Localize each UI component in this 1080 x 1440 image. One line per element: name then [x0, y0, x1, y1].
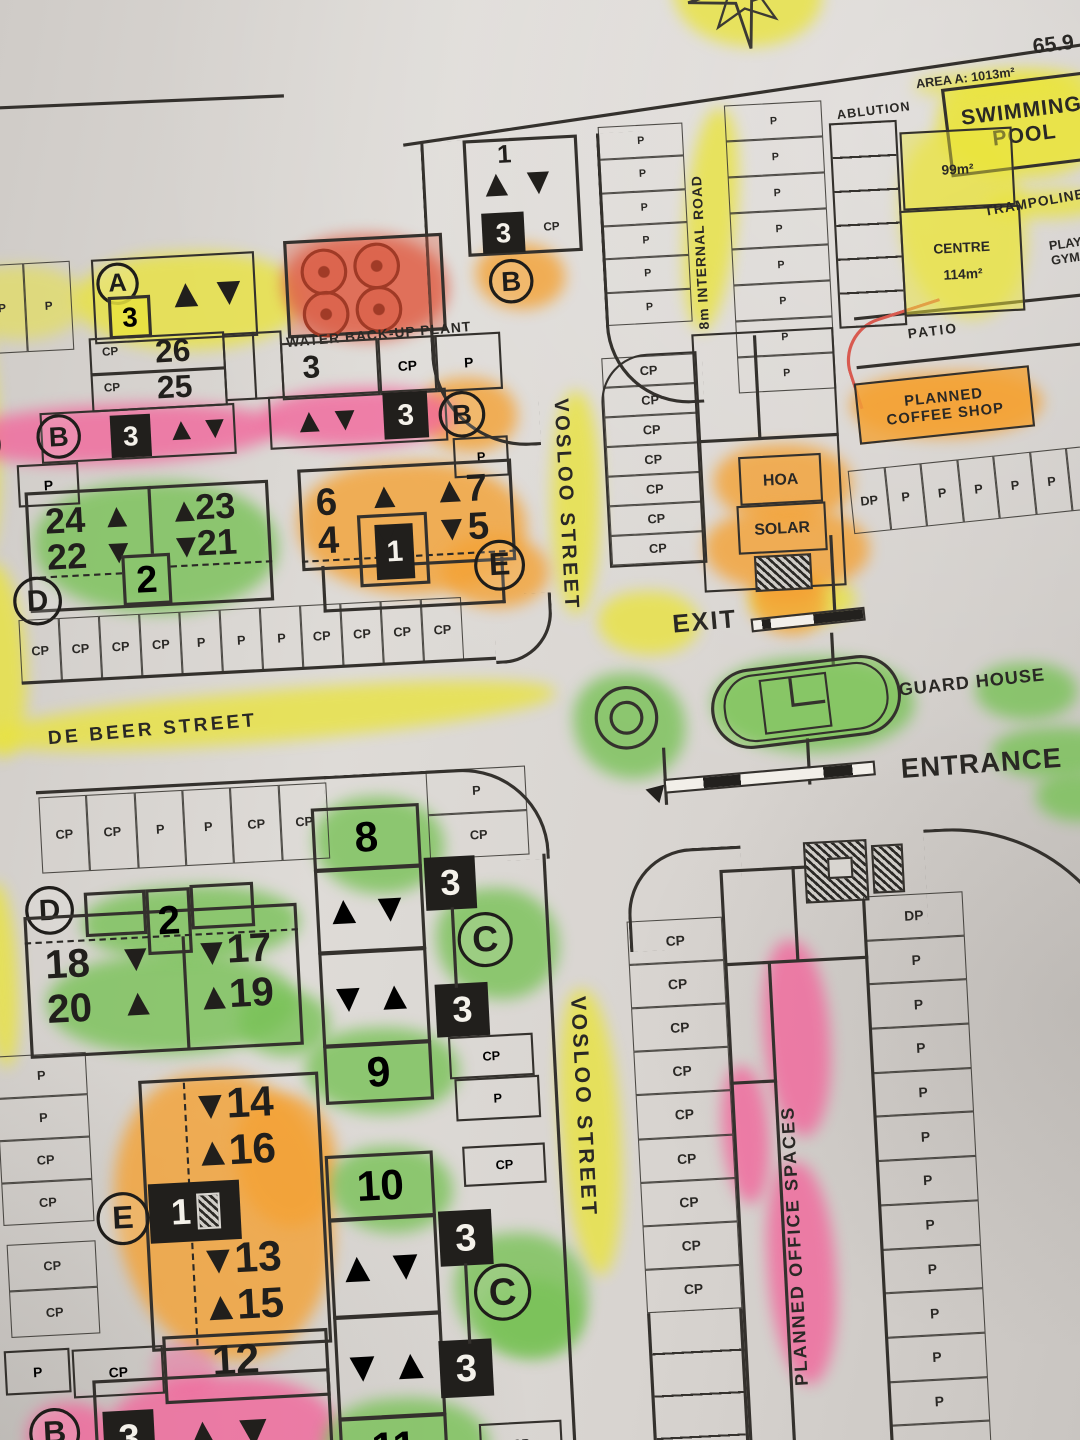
carport-stall: CP — [627, 917, 725, 966]
carport-stall: CP — [629, 960, 727, 1009]
direction-arrows: ▲▼ — [165, 270, 253, 315]
building-top-room — [189, 882, 255, 930]
unit-number-16: 16 — [228, 1127, 277, 1172]
unit-number-15: 15 — [236, 1281, 285, 1326]
parking-stall: P — [0, 1052, 88, 1099]
parking-stall: CP — [99, 614, 143, 680]
guard-house-building — [759, 672, 833, 735]
carport-label: CP — [102, 345, 119, 359]
arrow-down: ▼ — [433, 510, 471, 548]
unit-type-box: 3 — [108, 295, 153, 340]
parking-stall: CP — [428, 810, 530, 860]
building-unit-10: 10 — [325, 1150, 436, 1221]
highlight — [1035, 770, 1080, 823]
building-arrows: ▼▲ — [318, 947, 431, 1048]
parking-stall: P — [220, 607, 264, 673]
parking-stall: CP — [1, 1179, 94, 1226]
unit-number-19: 19 — [228, 972, 275, 1015]
carport-label: CP — [543, 220, 560, 234]
parking-stall: P — [425, 766, 527, 816]
parking-row: DPPPPPPP — [848, 444, 1080, 534]
building-arrows: ▼▲ — [333, 1311, 446, 1420]
carport-stall: CP — [633, 1047, 731, 1096]
ablution-building: 99m² — [899, 127, 1015, 211]
parking-column: PPCPCP — [0, 1052, 95, 1226]
building-arrows: ▲▼ — [314, 864, 426, 954]
carport-stall: CP — [609, 502, 704, 537]
building-unit-8: 8 — [311, 803, 422, 872]
parking-stall: CP — [38, 795, 90, 874]
unit-number-5: 5 — [467, 506, 490, 545]
direction-arrows: ▲▼ — [476, 161, 562, 204]
parking-stall: P — [870, 1024, 972, 1073]
parking-stall: P — [875, 1112, 977, 1161]
unit-type-box: 3 — [481, 212, 525, 254]
carport-stall: CP — [377, 335, 437, 395]
building-unit-9: 9 — [323, 1040, 434, 1105]
stair-hatch-icon — [199, 1195, 220, 1228]
carport-stall: CP — [642, 1221, 740, 1270]
parking-stall: P — [886, 1333, 988, 1382]
entrance-boom-gate — [663, 761, 875, 794]
parking-stall: CP — [139, 612, 183, 678]
parking-stall: P — [260, 605, 304, 671]
entrance-label: ENTRANCE — [900, 742, 1063, 785]
site-plan: PP A A 3 ▲▼ CP CP 26 25 B B 3 ▲▼ P WATER… — [0, 0, 1080, 1440]
arrow-down: ▼ — [116, 938, 156, 978]
parking-stall: CP — [86, 792, 138, 871]
parking-stall: P — [599, 156, 685, 194]
parking-stall: P — [881, 1244, 983, 1293]
arrow-up: ▲ — [118, 982, 158, 1022]
parking-stall: DP — [863, 891, 965, 940]
parking-stall: CP — [9, 1287, 100, 1338]
parking-stall: CP — [380, 599, 424, 665]
carport-stall: CP — [72, 1345, 166, 1398]
existing-structure-notch — [827, 857, 854, 880]
unit-type-box: 3 — [110, 414, 152, 458]
parking-stall: P — [884, 1288, 986, 1337]
unit-number-23: 23 — [194, 488, 236, 526]
solar-equipment — [754, 553, 813, 592]
parking-stall: P — [179, 610, 223, 676]
carport-stall: CP — [448, 1033, 535, 1080]
parking-stall: CP — [421, 597, 465, 663]
entrance-arrow — [643, 780, 664, 803]
carport-stall: CP — [636, 1091, 734, 1140]
parking-stall: P — [733, 280, 832, 321]
unit-number-21: 21 — [196, 524, 238, 562]
boundary-line — [0, 94, 284, 111]
unit-1-box: 1 — [148, 1180, 242, 1244]
parking-row: CPCPPPCPCP — [38, 782, 330, 873]
existing-structure — [871, 843, 905, 893]
arrow-up: ▲ — [366, 477, 404, 515]
parking-column-lines — [647, 1308, 751, 1440]
arrow-up: ▲ — [99, 497, 134, 533]
parking-stall: P — [872, 1068, 974, 1117]
unit-number-24: 24 — [44, 502, 86, 540]
parking-row: PP — [0, 261, 74, 355]
parking-stall: P — [23, 261, 74, 352]
parking-stall: P — [726, 136, 825, 177]
carport-stall: CP — [645, 1265, 743, 1314]
unit-number-25: 25 — [156, 371, 193, 405]
unit-number-20: 20 — [46, 988, 93, 1031]
unit-type-box: 3 — [382, 391, 429, 440]
building-top-room — [84, 889, 148, 937]
exit-label: EXIT — [671, 605, 738, 640]
carport-stall: CP — [607, 472, 702, 507]
unit-number-17: 17 — [226, 927, 273, 970]
parking-stall: P — [598, 123, 684, 161]
parking-stall: P — [877, 1156, 979, 1205]
play-gym-label: PLAY GYM — [1048, 234, 1080, 268]
parking-stall: P — [454, 1075, 541, 1122]
parking-stall: P — [4, 1348, 72, 1396]
parking-column-lines — [829, 120, 908, 329]
parking-stall: CP — [18, 618, 62, 684]
carport-stall: CP — [462, 1142, 547, 1187]
ablution-label: ABLUTION — [836, 100, 911, 124]
arrow-down: ▼ — [368, 515, 406, 553]
direction-arrows: ▲▼ — [165, 412, 234, 447]
parking-stall: CP — [300, 603, 344, 669]
parking-stall: P — [0, 1094, 90, 1141]
parking-stall: CP — [7, 1240, 98, 1291]
unit-2-box: 2 — [121, 553, 172, 606]
unit-number-3: 3 — [302, 352, 321, 385]
parking-stall: P — [731, 244, 830, 285]
guard-house-wall — [788, 678, 795, 706]
parking-stall: P — [606, 288, 692, 326]
unit-number-26: 26 — [154, 335, 191, 369]
carport-stall: CP — [640, 1178, 738, 1227]
highlight — [0, 882, 23, 1069]
parking-stall: P — [865, 935, 967, 984]
unit-number-18: 18 — [44, 943, 91, 986]
parking-column: PPPPPP — [598, 123, 693, 326]
direction-arrows: ▲▼ — [179, 1407, 282, 1440]
play-gym-line: GYM — [1050, 249, 1080, 268]
parking-stall: P — [724, 100, 823, 141]
unit-number-1: 1 — [170, 1191, 192, 1233]
parking-stall: CP — [0, 1136, 92, 1183]
hoa-room: HOA — [738, 453, 823, 506]
compass-rose-icon — [655, 0, 830, 63]
parking-stall: P — [603, 222, 689, 260]
unit-number-6: 6 — [315, 482, 338, 521]
parking-column: CPCP — [7, 1240, 101, 1338]
parking-stall: P — [134, 790, 186, 869]
unit-type-box: 3 — [102, 1409, 156, 1440]
unit-number-13: 13 — [233, 1235, 282, 1280]
unit-type-box: 3 — [438, 1338, 494, 1398]
carport-stall: CP — [606, 442, 701, 477]
unit-type-box: 3 — [435, 982, 491, 1038]
unit-type-box: 3 — [438, 1209, 494, 1267]
carport-column: CPCPCPCPCPCPCP — [599, 351, 707, 568]
parking-stall: P — [605, 255, 691, 293]
parking-stall: P — [879, 1200, 981, 1249]
carport-stall: CP — [479, 1420, 564, 1440]
water-tank-icon — [299, 247, 348, 296]
unit-number-7: 7 — [465, 468, 488, 507]
parking-stall: P — [728, 172, 827, 213]
centre-building: CENTRE 114m² — [899, 205, 1025, 317]
site-plan-photo: PP A A 3 ▲▼ CP CP 26 25 B B 3 ▲▼ P WATER… — [0, 0, 1080, 1440]
parking-pair: PCP — [425, 766, 529, 860]
centre-area-label: 114m² — [943, 265, 983, 283]
carport-stall: CP — [611, 531, 706, 566]
solar-room: SOLAR — [736, 501, 827, 554]
parking-stall: P — [868, 979, 970, 1028]
corner-number: 65.9 — [1031, 31, 1075, 60]
carport-label: CP — [104, 381, 121, 395]
unit-number-22: 22 — [46, 538, 88, 576]
unit-number-14: 14 — [225, 1080, 274, 1125]
parking-stall: P — [434, 332, 503, 393]
direction-arrows: ▲▼ — [292, 400, 365, 438]
unit-type-box: 3 — [424, 855, 478, 911]
parking-stall: P — [182, 787, 234, 866]
building-unit-11: 11 — [338, 1413, 449, 1440]
building-arrows: ▲▼ — [328, 1214, 441, 1319]
parking-stall: CP — [340, 601, 384, 667]
carport-stall: CP — [638, 1134, 736, 1183]
parking-stall: CP — [59, 616, 103, 682]
parking-stall: P — [888, 1377, 990, 1426]
arrow-up: ▲ — [431, 471, 469, 509]
parking-stall: CP — [230, 785, 282, 864]
parking-stall: P — [601, 189, 687, 227]
parking-stall: P — [730, 208, 829, 249]
unit-number-4: 4 — [317, 521, 340, 560]
guard-house-wall — [791, 700, 825, 707]
carport-stall: CP — [631, 1004, 729, 1053]
centre-label: CENTRE — [933, 238, 990, 257]
water-tank-icon — [352, 241, 401, 290]
